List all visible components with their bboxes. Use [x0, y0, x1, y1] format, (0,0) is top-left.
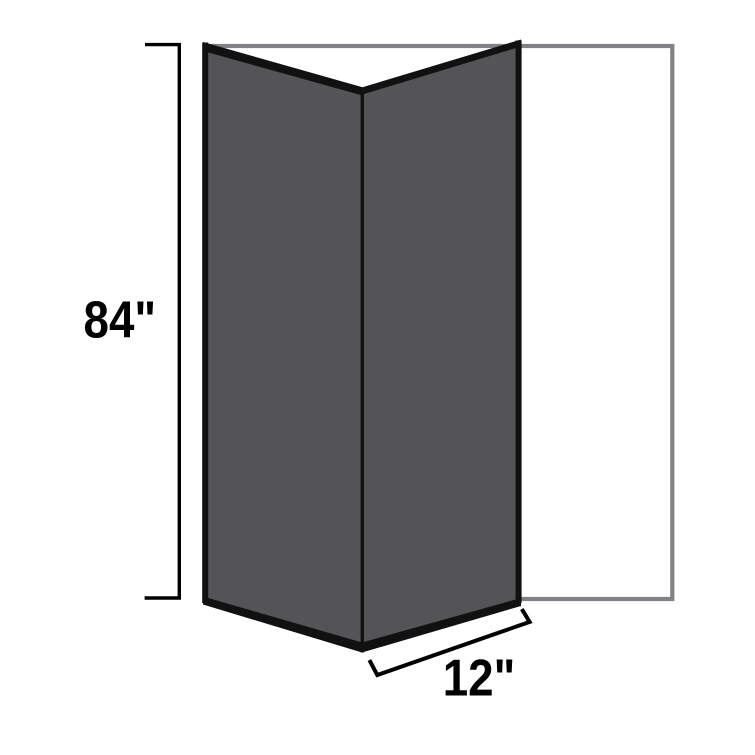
svg-text:84": 84" [84, 292, 157, 349]
svg-text:12": 12" [443, 650, 516, 707]
